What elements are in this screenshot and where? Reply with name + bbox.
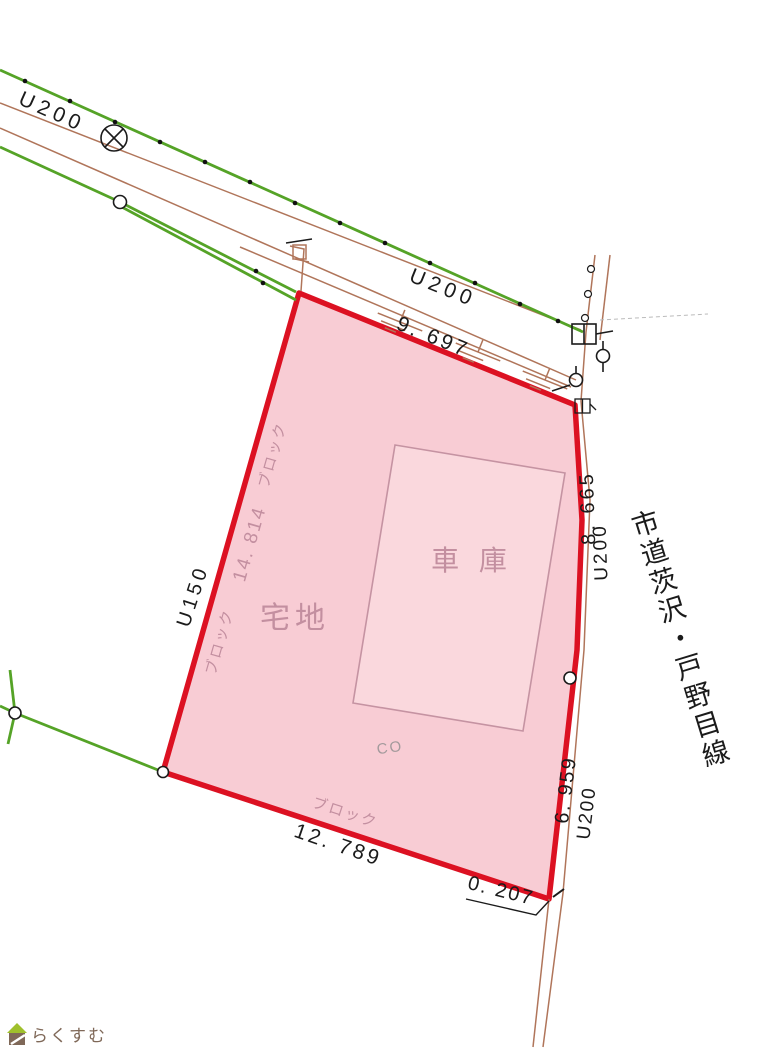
- survey-map: U200 U200 9. 697 8. 665 U200 市道茨沢・戸野目線 6…: [0, 0, 773, 1049]
- boundary-point-icon: [114, 196, 127, 209]
- boundary-point-icon: [564, 672, 576, 684]
- road-width-label: U200: [591, 523, 612, 581]
- valve-icon: [552, 366, 583, 391]
- post-icon: [588, 266, 595, 273]
- post-icon: [585, 291, 592, 298]
- dashed-reference-line: [600, 314, 708, 320]
- meter-box-icon: [575, 399, 596, 413]
- surface-label: CO: [376, 739, 404, 758]
- logo-text: らくすむ: [31, 1028, 107, 1045]
- house-logo-icon: [7, 1023, 27, 1045]
- meter-box-icon: [572, 324, 613, 344]
- garage-label: 車 庫: [431, 547, 513, 575]
- dimension-tick: [286, 239, 312, 243]
- gate-bracket-icon: [290, 245, 309, 291]
- post-icon: [582, 315, 589, 322]
- boundary-point-icon: [9, 707, 21, 719]
- boundary-point-icon: [158, 767, 169, 778]
- valve-icon: [597, 341, 610, 372]
- land-use-label: 宅地: [260, 604, 330, 634]
